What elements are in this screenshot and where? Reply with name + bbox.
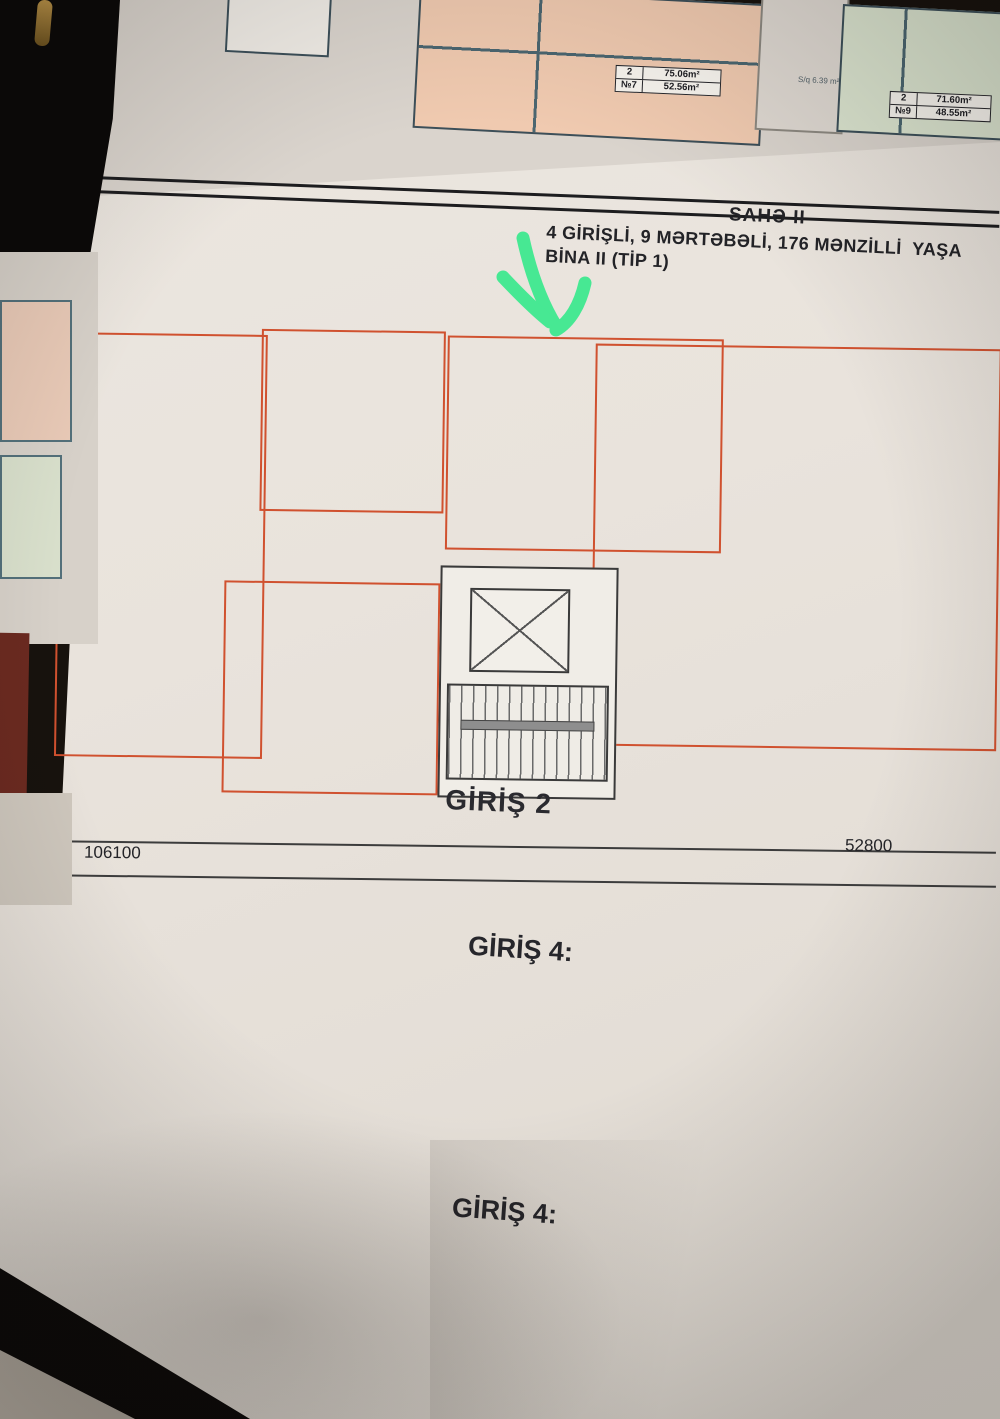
apartment-area-label: 271.60m² №948.55m²	[889, 91, 992, 122]
paper-edge	[0, 793, 72, 905]
staircase-rail	[460, 720, 594, 732]
staircase	[446, 684, 609, 782]
apartment-area-label: 275.06m² №752.56m²	[615, 65, 722, 97]
dimension-value-right: 52800	[845, 836, 893, 857]
left-underlying-plan-fragment	[0, 300, 72, 442]
elevator-shaft	[469, 588, 570, 673]
green-arrow-annotation	[480, 215, 610, 345]
entrance-2-label: GİRİŞ 2	[445, 784, 553, 820]
left-underlying-plan-fragment	[0, 455, 62, 579]
dimension-value-left: 106100	[84, 843, 141, 864]
photo-of-floor-plan-document: 275.06m² №752.56m² 271.60m² №948.55m² S/…	[0, 0, 1000, 1419]
apartment-outline	[221, 580, 440, 795]
entrance-4-heading: GİRİŞ 4:	[467, 931, 574, 969]
apartment-outline	[259, 329, 446, 514]
apartment-outline	[590, 344, 1000, 752]
maroon-book-edge	[0, 633, 29, 802]
